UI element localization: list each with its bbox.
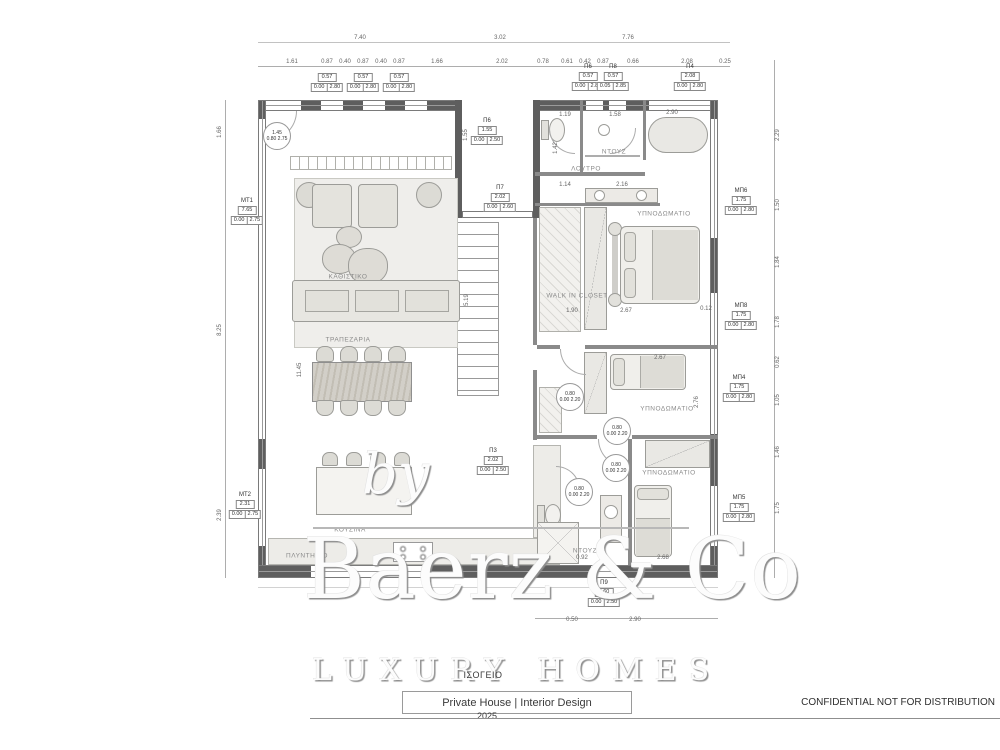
dining-chair (364, 346, 382, 362)
watermark-tagline: LUXURY HOMES (312, 653, 721, 688)
armchair-left (312, 184, 352, 228)
dimension-label: 0.62 (775, 356, 781, 368)
dimension-label: 1.84 (775, 256, 781, 268)
dimension-label: 0.78 (537, 59, 549, 65)
side-table-right (416, 182, 442, 208)
wall-opening-tag: ΜΠ41.750.002.80 (723, 375, 755, 402)
dimension-label: 1.61 (286, 59, 298, 65)
tag-height-range: 0.052.85 (597, 82, 629, 91)
dimension-label: 0.87 (357, 59, 369, 65)
window-tag: Π42.080.002.80 (674, 64, 706, 91)
window-tag: Π72.020.002.60 (484, 185, 516, 212)
room-label: ΝΤΟΥΖ (602, 149, 626, 156)
dimension-label: 0.40 (375, 59, 387, 65)
wall-opening-tag: ΜΠ61.750.002.80 (725, 188, 757, 215)
shower-head (598, 124, 610, 136)
window-tag: Π32.020.002.50 (477, 448, 509, 475)
tag-height-range: 0.002.80 (674, 82, 706, 91)
pillow (624, 268, 636, 298)
dim-line-top (258, 66, 730, 67)
bath3-sink (604, 505, 618, 519)
tag-label: ΜΤ1 (241, 198, 253, 205)
dimension-label: 1.75 (775, 502, 781, 514)
tag-width-value: 0.57 (354, 73, 373, 82)
room-label: ΥΠΝΟΔΩΜΑΤΙΟ (640, 406, 693, 413)
dimension-label: 2.16 (616, 182, 628, 188)
bar-stool (322, 452, 338, 466)
dining-chair (340, 400, 358, 416)
sofa-cushion (305, 290, 349, 312)
tag-height-range: 0.002.60 (484, 203, 516, 212)
tag-label: Π6 (584, 64, 592, 71)
tag-height-range: 0.002.80 (311, 83, 343, 92)
tag-height-range: 0.002.50 (471, 136, 503, 145)
sofa-cushion (405, 290, 449, 312)
room-label: ΥΠΝΟΔΩΜΑΤΙΟ (637, 211, 690, 218)
vanity-sink-left (594, 190, 605, 201)
dimension-label: 3.02 (494, 35, 506, 41)
bar-stool (346, 452, 362, 466)
wall-opening-tag: ΜΤ17.650.002.75 (231, 198, 263, 225)
wall-opening-tag: ΜΠ81.750.002.80 (725, 303, 757, 330)
pillow (624, 232, 636, 262)
dining-chair (316, 400, 334, 416)
dimension-label: 1.66 (217, 126, 223, 138)
dimension-label: 8.25 (217, 324, 223, 336)
tag-width-value: 2.08 (681, 72, 700, 81)
dimension-label: 0.25 (719, 59, 731, 65)
dim-line-bottom (535, 618, 718, 619)
wall-opening-tag: ΜΤ22.310.002.75 (229, 492, 261, 519)
tag-label: Π3 (489, 448, 497, 455)
tag-label: ΜΠ8 (735, 303, 748, 310)
dimension-label: 1.19 (559, 112, 571, 118)
headboard (612, 228, 618, 302)
tag-width-value: 1.75 (730, 383, 749, 392)
master-blanket (652, 230, 698, 300)
tag-height-range: 0.002.80 (725, 321, 757, 330)
tag-width-value: 1.55 (478, 126, 497, 135)
dimension-label: 1.66 (431, 59, 443, 65)
tag-width-value: 0.57 (390, 73, 409, 82)
wall-opening-tag: ΜΠ51.750.002.80 (723, 495, 755, 522)
tag-width-value: 2.02 (491, 193, 510, 202)
dimension-label: 11.45 (297, 363, 303, 378)
dimension-label: 7.40 (354, 35, 366, 41)
top-wall-right-wing (535, 100, 718, 111)
tag-height-range: 0.002.50 (477, 466, 509, 475)
tag-width-value: 2.02 (484, 456, 503, 465)
shower-tub-partition (643, 100, 646, 160)
project-title-box: Private House | Interior Design (402, 691, 632, 714)
dimension-label: 2.02 (496, 59, 508, 65)
confidential-notice: CONFIDENTIAL NOT FOR DISTRIBUTION (790, 697, 995, 708)
tag-height-range: 0.002.80 (725, 206, 757, 215)
dimension-label: 2.29 (775, 129, 781, 141)
tag-label: Π8 (609, 64, 617, 71)
dimension-label: 1.50 (775, 199, 781, 211)
tag-label: ΜΠ4 (733, 375, 746, 382)
bedroom2-door-arc (560, 349, 586, 375)
tag-height-range: 0.002.75 (231, 216, 263, 225)
watermark-brand: Baerz & Co (303, 520, 802, 618)
vanity-back-partition (535, 203, 660, 206)
recess-window (462, 211, 533, 218)
window-tag: 0.570.002.80 (383, 72, 415, 92)
dimension-label: 1.46 (775, 446, 781, 458)
window-tag: Π61.550.002.50 (471, 118, 503, 145)
dimension-label: 1.05 (775, 394, 781, 406)
dimension-label: 7.76 (622, 35, 634, 41)
tag-height-range: 0.002.75 (229, 510, 261, 519)
bathtub (648, 117, 708, 153)
dimension-label: 1.55 (463, 129, 469, 141)
footer-rule (310, 718, 1000, 719)
tag-label: Π7 (496, 185, 504, 192)
tag-width-value: 2.31 (236, 500, 255, 509)
armchair-right (358, 184, 398, 228)
tag-height-range: 0.002.80 (723, 393, 755, 402)
dimension-label: 0.40 (339, 59, 351, 65)
sofa-cushion (355, 290, 399, 312)
tag-label: ΜΠ6 (735, 188, 748, 195)
wc-shower-partition (580, 100, 583, 172)
tag-height-range: 0.002.80 (347, 83, 379, 92)
dim-line-top-outer (258, 42, 730, 43)
door-tag: 0.800.00 2.20 (565, 478, 593, 506)
dimension-label: 1.78 (775, 316, 781, 328)
tag-height-range: 0.002.80 (383, 83, 415, 92)
recess-wall-right (533, 100, 540, 218)
project-year: 2025 (477, 711, 497, 721)
vanity-sink-right (636, 190, 647, 201)
dimension-label: 0.12 (700, 306, 712, 312)
tag-width-value: 0.57 (604, 72, 623, 81)
bedroom2-wardrobe (584, 352, 607, 414)
dining-chair (340, 346, 358, 362)
dimension-label: 2.76 (694, 396, 700, 408)
dim-line-left (225, 100, 226, 578)
dimension-label: 1.90 (566, 308, 578, 314)
tag-width-value: 7.65 (238, 206, 257, 215)
tag-width-value: 0.57 (318, 73, 337, 82)
dining-chair (388, 400, 406, 416)
tag-width-value: 1.75 (732, 196, 751, 205)
dimension-label: 2.67 (654, 355, 666, 361)
entry-closet-row (290, 156, 452, 170)
top-wall-left-wing (258, 100, 457, 111)
dimension-label: 5.19 (464, 294, 470, 306)
watermark-by: by (362, 442, 429, 507)
staircase (457, 222, 499, 396)
dimension-label: 0.87 (393, 59, 405, 65)
door-tag: 1.450.80 2.75 (263, 122, 291, 150)
dining-chair (364, 400, 382, 416)
room-label: ΤΡΑΠΕΖΑΡΙΑ (326, 337, 371, 344)
floor-plan-title: ΙΣΟΓΕΙΟ (463, 670, 502, 680)
dimension-label: 1.14 (559, 182, 571, 188)
door-tag: 0.800.00 2.20 (603, 417, 631, 445)
dimension-label: 2.67 (620, 308, 632, 314)
room-label: WALK IN CLOSET (546, 293, 607, 300)
tag-label: ΜΤ2 (239, 492, 251, 499)
bathroom-partition-h (535, 172, 645, 176)
tag-label: ΜΠ5 (733, 495, 746, 502)
tag-width-value: 1.75 (732, 311, 751, 320)
window-tag: Π80.570.052.85 (597, 64, 629, 91)
tag-label: Π6 (483, 118, 491, 125)
door-tag: 0.800.00 2.20 (602, 454, 630, 482)
bedroom3-wardrobe (645, 440, 710, 468)
project-title: Private House | Interior Design (442, 697, 592, 709)
tag-width-value: 1.75 (730, 503, 749, 512)
dining-table (312, 362, 412, 402)
window-tag: 0.570.002.80 (347, 72, 379, 92)
dimension-label: 0.87 (321, 59, 333, 65)
pillow (613, 358, 625, 386)
pillow (637, 488, 669, 500)
master-wardrobe (584, 207, 607, 330)
toilet-tank (541, 120, 549, 140)
dining-chair (316, 346, 334, 362)
room-label: ΛΟΥΤΡΟ (571, 166, 601, 173)
dimension-label: 2.90 (666, 110, 678, 116)
right-wall (710, 100, 718, 578)
tag-width-value: 0.57 (579, 72, 598, 81)
dimension-label: 1.58 (609, 112, 621, 118)
dining-chair (388, 346, 406, 362)
dimension-label: 2.39 (217, 509, 223, 521)
door-tag: 0.800.00 2.20 (556, 383, 584, 411)
tag-label: Π4 (686, 64, 694, 71)
room-label: ΥΠΝΟΔΩΜΑΤΙΟ (642, 470, 695, 477)
window-tag: 0.570.002.80 (311, 72, 343, 92)
floor-plan-sheet: by Baerz & Co LUXURY HOMES ΙΣΟΓΕΙΟ Priva… (0, 0, 1000, 750)
room-label: ΚΑΘΙΣΤΙΚΟ (329, 274, 368, 281)
dimension-label: 1.42 (553, 142, 559, 154)
